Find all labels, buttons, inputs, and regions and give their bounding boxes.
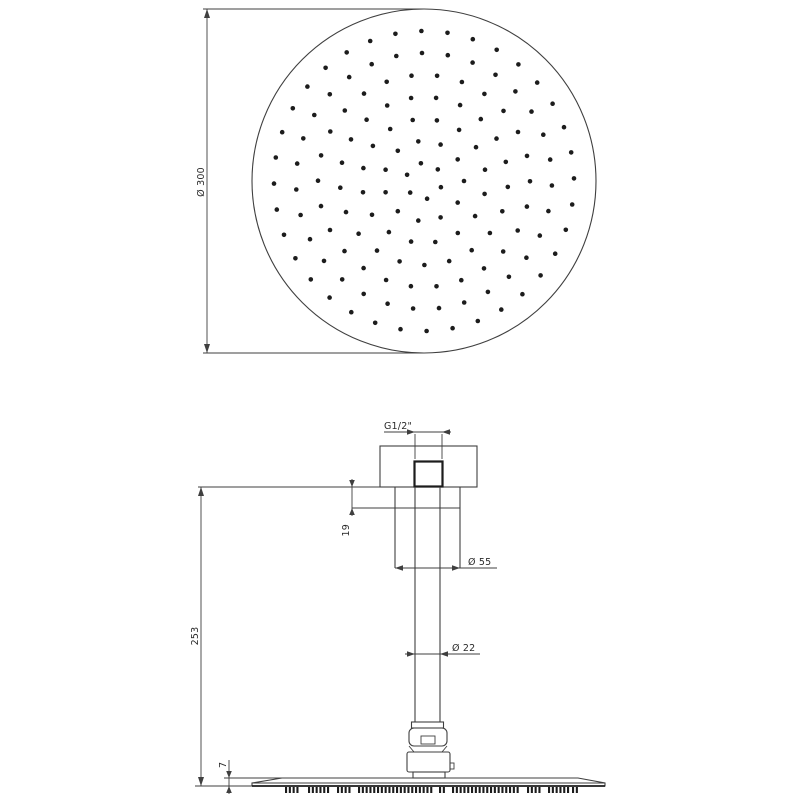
nozzle-dot xyxy=(435,118,440,123)
nozzle-tooth xyxy=(535,787,537,793)
arrowhead-right-icon xyxy=(452,565,460,570)
nozzle-dot xyxy=(393,32,398,37)
nozzle-tooth xyxy=(385,787,387,793)
nozzle-tooth xyxy=(426,787,428,793)
technical-drawing-page: Ø 300 G1/2" xyxy=(0,0,800,800)
nozzle-tooth xyxy=(415,787,417,793)
label-drop-height: 253 xyxy=(190,627,201,646)
dimension-plate-thickness: 7 xyxy=(218,760,282,794)
nozzle-tooth xyxy=(463,787,465,793)
nozzle-tooth xyxy=(327,787,329,793)
nozzle-tooth xyxy=(358,787,360,793)
nozzle-tooth xyxy=(388,787,390,793)
nozzle-dot xyxy=(422,263,427,268)
nozzle-dot xyxy=(398,327,403,332)
nozzle-dot xyxy=(520,292,525,297)
nozzle-tooth xyxy=(323,787,325,793)
nozzle-dot xyxy=(500,209,505,214)
nozzle-tooth xyxy=(312,787,314,793)
nozzle-dot xyxy=(471,37,476,42)
nozzle-dot xyxy=(529,109,534,114)
nozzle-dot xyxy=(316,178,321,183)
nozzle-dot xyxy=(501,109,506,114)
nozzle-dot xyxy=(458,103,463,108)
nozzle-dot xyxy=(457,128,462,133)
nozzle-dot xyxy=(476,319,481,324)
nozzle-dot xyxy=(312,113,317,118)
nozzle-dot xyxy=(309,277,314,282)
connector-nut xyxy=(409,728,447,746)
nozzle-dot xyxy=(528,179,533,184)
nozzle-dot xyxy=(438,142,443,147)
nozzle-tooth xyxy=(337,787,339,793)
nozzle-dot xyxy=(411,306,416,311)
nozzle-tooth xyxy=(556,787,558,793)
nozzle-tooth xyxy=(316,787,318,793)
nozzle-dot xyxy=(396,209,401,214)
label-ceiling-inset: 19 xyxy=(341,524,352,537)
housing-set-screw xyxy=(450,763,454,769)
nozzle-tooth xyxy=(527,787,529,793)
nozzle-dot xyxy=(361,190,366,195)
nozzle-dot xyxy=(462,300,467,305)
nozzle-dot xyxy=(482,266,487,271)
nozzle-dot xyxy=(396,149,401,154)
nozzle-dot xyxy=(298,213,303,218)
nozzle-tooth xyxy=(319,787,321,793)
nozzle-tooth xyxy=(293,787,295,793)
nozzle-dot xyxy=(319,153,324,158)
arrowhead-right-icon xyxy=(407,651,415,656)
nozzle-dot xyxy=(507,275,512,280)
nozzle-tooth xyxy=(509,787,511,793)
nozzle-dot xyxy=(349,137,354,142)
nozzle-tooth xyxy=(494,787,496,793)
nozzle-dot xyxy=(373,321,378,326)
nozzle-dot xyxy=(433,240,438,245)
nozzle-dot xyxy=(437,306,442,311)
nozzle-dot xyxy=(416,218,421,223)
connector-taper xyxy=(409,746,447,752)
housing-base xyxy=(413,772,445,778)
nozzle-dot xyxy=(459,278,464,283)
nozzle-dot xyxy=(384,278,389,283)
dimension-thread: G1/2" xyxy=(384,421,451,459)
nozzle-dot xyxy=(387,230,392,235)
nozzle-dot xyxy=(439,185,444,190)
nozzle-dot xyxy=(438,215,443,220)
nozzle-tooth xyxy=(443,787,445,793)
nozzle-dot xyxy=(462,179,467,184)
nozzle-dot xyxy=(506,185,511,190)
nozzle-tooth xyxy=(430,787,432,793)
nozzle-tooth xyxy=(362,787,364,793)
nozzle-tooth xyxy=(400,787,402,793)
nozzle-dot xyxy=(553,251,558,256)
nozzle-tooth xyxy=(482,787,484,793)
nozzle-tooth xyxy=(296,787,298,793)
nozzle-tooth xyxy=(501,787,503,793)
nozzle-dot xyxy=(394,54,399,59)
dimension-pipe-diameter: Ø 22 xyxy=(405,643,480,657)
dimension-drop-height: 253 xyxy=(190,487,252,786)
nozzle-dot xyxy=(516,62,521,67)
nozzle-tooth xyxy=(289,787,291,793)
ball-joint-connector xyxy=(407,722,454,778)
nozzle-tooth xyxy=(531,787,533,793)
arrowhead-up-icon xyxy=(204,9,210,18)
nozzle-dot xyxy=(342,249,347,254)
nozzle-dot xyxy=(301,136,306,141)
nozzle-dot xyxy=(369,62,374,67)
nozzle-tooth xyxy=(475,787,477,793)
nozzle-dot xyxy=(516,130,521,135)
nozzle-dot xyxy=(409,73,414,78)
label-top-diameter: Ø 300 xyxy=(196,167,207,197)
nozzle-tooth xyxy=(559,787,561,793)
nozzle-dot xyxy=(447,259,452,264)
nozzle-dot xyxy=(570,202,575,207)
arrowhead-up-icon xyxy=(226,786,232,793)
nozzle-tooth xyxy=(513,787,515,793)
nozzle-dot xyxy=(384,80,389,85)
nozzle-dot xyxy=(371,144,376,149)
nozzle-dot xyxy=(474,145,479,150)
nozzle-dot xyxy=(282,233,287,238)
nozzle-dots xyxy=(272,29,577,334)
nozzle-dot xyxy=(494,136,499,141)
nozzle-dot xyxy=(294,187,299,192)
arrowhead-down-icon xyxy=(226,771,232,778)
nozzle-dot xyxy=(572,176,577,181)
nozzle-dot xyxy=(397,259,402,264)
nozzle-dot xyxy=(420,51,425,56)
nozzle-dot xyxy=(347,75,352,80)
nozzle-tooth xyxy=(538,787,540,793)
nozzle-dot xyxy=(538,233,543,238)
nozzle-dot xyxy=(409,96,414,101)
nozzle-tooth xyxy=(467,787,469,793)
nozzle-tooth xyxy=(490,787,492,793)
nozzle-dot xyxy=(280,130,285,135)
nozzle-dot xyxy=(364,117,369,122)
nozzle-dot xyxy=(469,248,474,253)
nozzle-dot xyxy=(305,84,310,89)
label-flange-diameter: Ø 55 xyxy=(468,557,491,568)
nozzle-tooth xyxy=(505,787,507,793)
nozzle-dot xyxy=(295,161,300,166)
nozzle-tooth xyxy=(576,787,578,793)
nozzle-dot xyxy=(323,66,328,71)
nozzle-dot xyxy=(340,160,345,165)
nozzle-dot xyxy=(546,209,551,214)
nozzle-dot xyxy=(435,74,440,79)
nozzle-dot xyxy=(405,173,410,178)
nozzle-tooth xyxy=(479,787,481,793)
nozzle-dot xyxy=(479,117,484,122)
nozzle-dot xyxy=(385,103,390,108)
nozzle-dot xyxy=(424,329,429,334)
nozzle-dot xyxy=(515,228,520,233)
nozzle-dot xyxy=(356,231,361,236)
nozzle-dot xyxy=(483,167,488,172)
nozzle-dot xyxy=(550,101,555,106)
nozzle-dot xyxy=(482,92,487,97)
nozzle-dot xyxy=(361,292,366,297)
dimension-flange-diameter: Ø 55 xyxy=(395,557,497,571)
nozzle-dot xyxy=(385,301,390,306)
nozzle-dot xyxy=(550,183,555,188)
nozzle-tooth xyxy=(341,787,343,793)
nozzle-dot xyxy=(538,273,543,278)
nozzle-dot xyxy=(274,155,279,160)
nozzle-dot xyxy=(450,326,455,331)
nozzle-dot xyxy=(375,248,380,253)
nozzle-tooth xyxy=(348,787,350,793)
nozzle-dot xyxy=(361,166,366,171)
nozzle-dot xyxy=(434,284,439,289)
nozzle-dot xyxy=(344,210,349,215)
nozzle-teeth xyxy=(285,787,578,793)
arrowhead-left-icon xyxy=(442,429,450,434)
nozzle-dot xyxy=(470,60,475,65)
nozzle-dot xyxy=(291,106,296,111)
nozzle-dot xyxy=(455,200,460,205)
arrowhead-down-icon xyxy=(198,777,204,786)
nozzle-dot xyxy=(569,150,574,155)
nozzle-dot xyxy=(425,196,430,201)
nozzle-dot xyxy=(562,125,567,130)
nozzle-dot xyxy=(409,284,414,289)
nozzle-tooth xyxy=(486,787,488,793)
connector-notch xyxy=(421,736,435,744)
nozzle-dot xyxy=(368,39,373,44)
nozzle-dot xyxy=(416,139,421,144)
nozzle-tooth xyxy=(308,787,310,793)
joint-housing xyxy=(407,752,450,772)
nozzle-dot xyxy=(319,204,324,209)
nozzle-dot xyxy=(383,190,388,195)
nozzle-tooth xyxy=(392,787,394,793)
nozzle-dot xyxy=(343,108,348,113)
nozzle-dot xyxy=(409,239,414,244)
arrowhead-down-icon xyxy=(349,480,355,487)
nozzle-dot xyxy=(535,80,540,85)
nozzle-dot xyxy=(482,192,487,197)
nozzle-dot xyxy=(524,255,529,260)
shower-plate-profile xyxy=(252,778,605,793)
nozzle-dot xyxy=(445,31,450,36)
nozzle-tooth xyxy=(439,787,441,793)
nozzle-dot xyxy=(408,190,413,195)
nozzle-dot xyxy=(388,127,393,132)
dimension-top-diameter: Ø 300 xyxy=(196,9,424,353)
nozzle-tooth xyxy=(411,787,413,793)
nozzle-tooth xyxy=(366,787,368,793)
nozzle-dot xyxy=(564,228,569,233)
nozzle-dot xyxy=(455,157,460,162)
nozzle-dot xyxy=(328,92,333,97)
nozzle-tooth xyxy=(345,787,347,793)
nozzle-tooth xyxy=(419,787,421,793)
nozzle-dot xyxy=(494,48,499,53)
nozzle-dot xyxy=(328,129,333,134)
nozzle-tooth xyxy=(369,787,371,793)
nozzle-tooth xyxy=(407,787,409,793)
nozzle-tooth xyxy=(452,787,454,793)
nozzle-dot xyxy=(293,256,298,261)
nozzle-tooth xyxy=(498,787,500,793)
nozzle-dot xyxy=(327,295,332,300)
arrowhead-down-icon xyxy=(204,344,210,353)
nozzle-tooth xyxy=(563,787,565,793)
nozzle-tooth xyxy=(517,787,519,793)
nozzle-dot xyxy=(525,204,530,209)
arrowhead-left-icon xyxy=(440,651,448,656)
nozzle-dot xyxy=(361,266,366,271)
nozzle-dot xyxy=(383,167,388,172)
nozzle-dot xyxy=(349,310,354,315)
connector-collar xyxy=(412,722,444,728)
nozzle-dot xyxy=(513,89,518,94)
arrowhead-up-icon xyxy=(349,508,355,515)
shower-head-technical-drawing: Ø 300 G1/2" xyxy=(0,0,800,800)
nozzle-tooth xyxy=(404,787,406,793)
nozzle-tooth xyxy=(456,787,458,793)
nozzle-tooth xyxy=(396,787,398,793)
nozzle-dot xyxy=(460,80,465,85)
label-plate-thickness: 7 xyxy=(218,762,229,768)
nozzle-dot xyxy=(473,214,478,219)
nozzle-dot xyxy=(446,53,451,58)
nozzle-dot xyxy=(493,73,498,78)
nozzle-dot xyxy=(328,228,333,233)
nozzle-dot xyxy=(541,132,546,137)
nozzle-dot xyxy=(344,50,349,55)
nozzle-tooth xyxy=(572,787,574,793)
nozzle-tooth xyxy=(567,787,569,793)
side-view: G1/2" 19 Ø 55 xyxy=(190,421,605,794)
top-view: Ø 300 xyxy=(196,9,596,353)
nozzle-tooth xyxy=(381,787,383,793)
nozzle-dot xyxy=(370,213,375,218)
nozzle-tooth xyxy=(377,787,379,793)
nozzle-tooth xyxy=(423,787,425,793)
nozzle-dot xyxy=(419,29,424,34)
shower-arm-pipe xyxy=(415,487,440,722)
nozzle-tooth xyxy=(552,787,554,793)
nozzle-dot xyxy=(308,237,313,242)
nozzle-dot xyxy=(338,185,343,190)
nozzle-dot xyxy=(548,157,553,162)
nozzle-dot xyxy=(486,290,491,295)
thread-fitting xyxy=(415,462,443,487)
nozzle-dot xyxy=(362,91,367,96)
nozzle-tooth xyxy=(460,787,462,793)
nozzle-dot xyxy=(275,207,280,212)
nozzle-dot xyxy=(322,259,327,264)
nozzle-dot xyxy=(499,307,504,312)
nozzle-dot xyxy=(340,277,345,282)
nozzle-dot xyxy=(456,231,461,236)
arrowhead-left-icon xyxy=(395,565,403,570)
arrowhead-up-icon xyxy=(198,487,204,496)
nozzle-dot xyxy=(410,118,415,123)
nozzle-tooth xyxy=(471,787,473,793)
nozzle-dot xyxy=(488,231,493,236)
nozzle-dot xyxy=(272,181,277,186)
nozzle-tooth xyxy=(373,787,375,793)
nozzle-dot xyxy=(436,167,441,172)
nozzle-dot xyxy=(419,161,424,166)
nozzle-dot xyxy=(501,249,506,254)
nozzle-dot xyxy=(525,154,530,159)
nozzle-tooth xyxy=(285,787,287,793)
plate-outline xyxy=(252,778,605,786)
nozzle-dot xyxy=(434,96,439,101)
nozzle-tooth xyxy=(548,787,550,793)
label-pipe-diameter: Ø 22 xyxy=(452,643,475,654)
flange xyxy=(352,487,460,568)
shower-face-outline xyxy=(252,9,596,353)
nozzle-dot xyxy=(504,160,509,165)
label-thread: G1/2" xyxy=(384,421,412,432)
